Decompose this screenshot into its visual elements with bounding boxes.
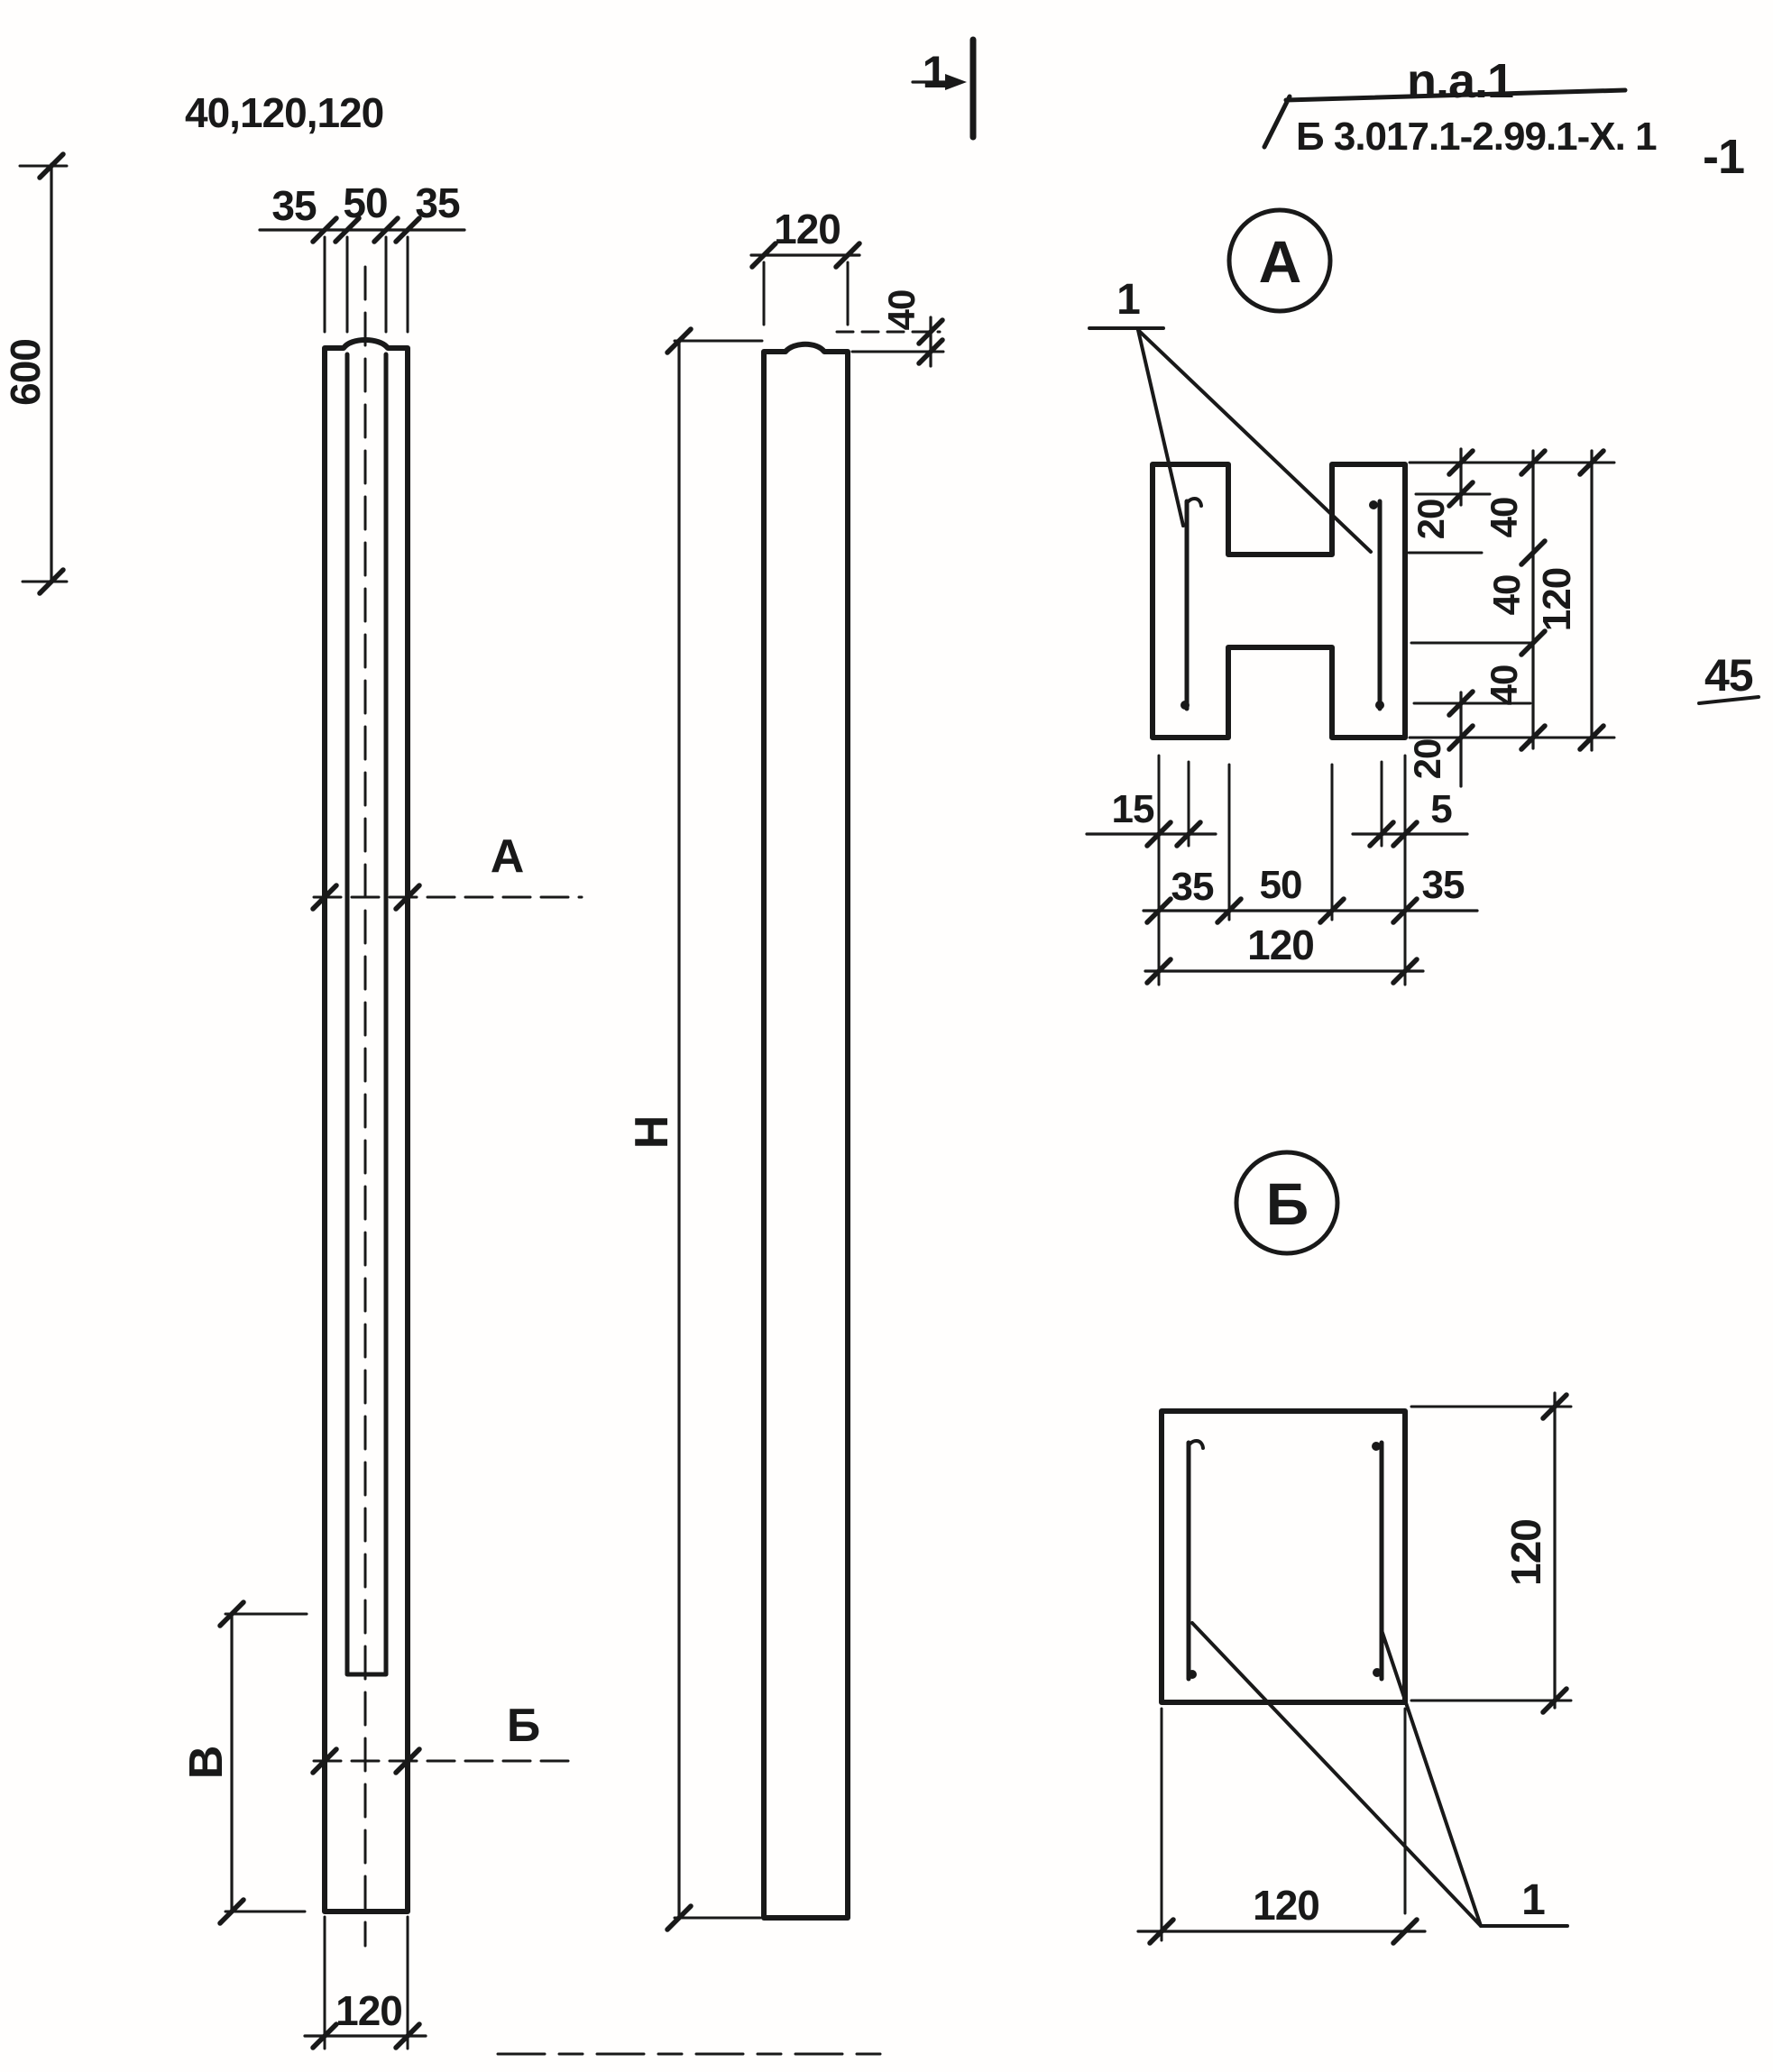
cut-marker-label: 1 [923, 47, 947, 97]
dim-H-label: Н [626, 1116, 678, 1150]
section-a-mark: А [491, 830, 524, 883]
drawing-sheet: 40,120,120 35 50 35 600 А [0, 0, 1773, 2072]
cut-arrow-icon [945, 74, 967, 90]
title-code-bottom: Б 3.017.1-2.99.1-Х. 1 [1296, 115, 1657, 159]
dim-5: 5 [1430, 787, 1452, 831]
dim-40-a: 40 [1483, 498, 1525, 538]
rebar-mark-label: 1 [1116, 276, 1140, 324]
section-a-bottom-dims: 15 5 35 50 35 120 [1087, 756, 1477, 985]
section-b-mark: Б [507, 1700, 539, 1752]
dim-40-b: 40 [1485, 575, 1528, 616]
front-elevation-view: 40,120,120 35 50 35 600 А [2, 89, 582, 2049]
dim-120-top: 120 [774, 206, 841, 252]
dim-120-bottom: 120 [335, 1987, 402, 2034]
dim-120-bottom: 120 [1247, 921, 1314, 968]
dim-50: 50 [1260, 863, 1302, 907]
dim-35-right: 35 [415, 179, 460, 226]
section-a-outline [1153, 464, 1405, 738]
sheet-number-label: 45 [1704, 650, 1753, 701]
section-trace-a: А [313, 830, 582, 909]
section-b-outline [1162, 1411, 1405, 1702]
section-cut-marker: 1 [913, 40, 973, 137]
dim-15: 15 [1112, 787, 1154, 831]
dim-40-tip: 40 [837, 290, 943, 366]
dim-H: Н [626, 329, 762, 1930]
dim-50: 50 [343, 179, 387, 226]
section-b-right-dim: 120 [1411, 1393, 1571, 1712]
dim-120-right: 120 [1535, 568, 1579, 631]
dim-120-bottom: 120 [1253, 1882, 1319, 1929]
sheet-number: 45 [1699, 650, 1759, 703]
dim-35-right: 35 [1422, 863, 1465, 907]
technical-drawing: 40,120,120 35 50 35 600 А [0, 0, 1773, 2072]
title-code-top: n.a.1 [1407, 54, 1513, 108]
section-b-bottom-dim: 120 [1138, 1709, 1425, 1943]
dim-20-bottom: 20 [1406, 739, 1448, 780]
section-trace-b: Б [313, 1700, 574, 1773]
dim-B: В [180, 1602, 307, 1923]
side-post-outline [764, 344, 848, 1918]
dim-B-label: В [180, 1747, 233, 1780]
rebar-mark-label: 1 [1521, 1876, 1545, 1924]
title-rev-mark: -1 [1703, 130, 1744, 184]
dim-40-tip-label: 40 [880, 290, 923, 331]
dim-120-right: 120 [1502, 1519, 1549, 1586]
dim-35-left: 35 [1171, 865, 1214, 909]
front-top-dimension: 35 50 35 [260, 179, 464, 332]
section-a-rebar [1180, 499, 1384, 710]
dim-40-c: 40 [1483, 665, 1525, 706]
section-b-rebar [1188, 1441, 1382, 1679]
section-a-bubble-label: А [1259, 228, 1301, 295]
section-b-detail: Б 120 120 1 [1138, 1152, 1571, 1943]
dim-600-label: 600 [2, 339, 49, 406]
front-chain-dims: 40,120,120 [185, 89, 383, 136]
side-elevation-view: 120 40 Н [626, 206, 943, 1930]
title-reference: n.a.1 Б 3.017.1-2.99.1-Х. 1 -1 [1264, 54, 1744, 184]
dim-35-left: 35 [271, 182, 317, 229]
section-a-detail: А 1 20 20 [1087, 210, 1614, 985]
dim-600: 600 [2, 154, 67, 593]
section-a-right-dims: 20 20 40 40 40 120 [1406, 449, 1614, 786]
dim-20-top: 20 [1410, 500, 1452, 540]
side-top-dimension: 120 [751, 206, 859, 325]
section-b-bubble-label: Б [1266, 1170, 1308, 1237]
